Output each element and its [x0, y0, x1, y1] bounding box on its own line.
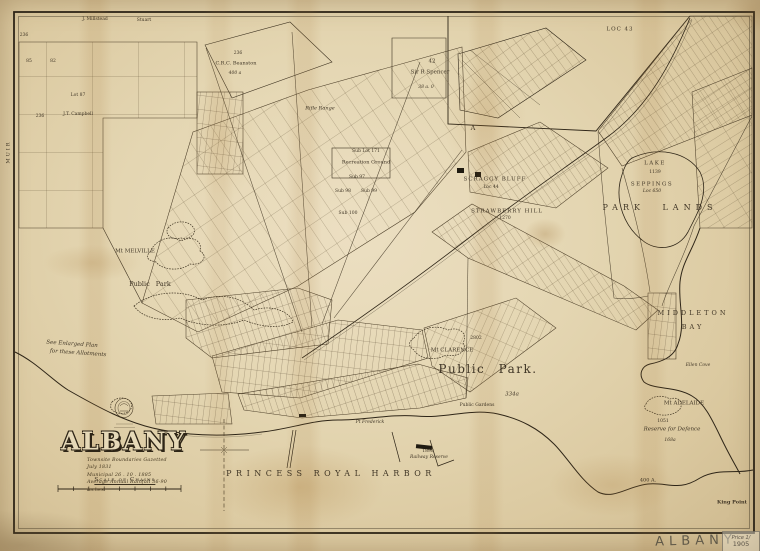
- map-label: Mt CLARENCE: [431, 348, 474, 354]
- map-label: 236: [234, 52, 243, 57]
- map-label: J. Millstead: [82, 18, 108, 23]
- map-label: Sub Lot 171: [352, 150, 380, 155]
- map-label: LOC 43: [606, 27, 633, 33]
- title-subtitle: Townsite Boundaries Gazetted July 1831 M…: [87, 457, 177, 494]
- map-label: Mt MELVILLE: [115, 249, 155, 255]
- map-label: Loc 44: [483, 186, 498, 191]
- subtitle-line-1: Townsite Boundaries Gazetted July 1831: [87, 457, 177, 472]
- map-label: 42: [429, 59, 436, 65]
- map-label: 236: [20, 34, 29, 39]
- map-label: Railway Reserve: [410, 456, 448, 461]
- map-label: 38 a. 0: [418, 86, 434, 91]
- map-label: SEPPINGS: [631, 182, 673, 188]
- map-label: 1051: [657, 420, 668, 425]
- map-label: A: [471, 125, 476, 132]
- map-label: 1139: [649, 171, 660, 176]
- map-label: 2802: [470, 337, 481, 342]
- map-label: 168a: [664, 439, 675, 444]
- map-label: King Point: [717, 501, 747, 506]
- map-label: PARK LANDS: [603, 204, 718, 212]
- map-label: Pt Frederick: [356, 421, 385, 426]
- map-label: Rifle Range: [305, 107, 335, 112]
- map-label: Sub 99: [361, 190, 377, 195]
- map-label: 82: [50, 60, 56, 65]
- map-label: LAKE: [644, 161, 666, 167]
- map-label: STRAWBERRY HILL: [471, 209, 543, 215]
- scale-label: Scale of Chains: [94, 477, 155, 485]
- map-label: Recreation Ground: [342, 161, 390, 166]
- map-label: 400 a: [229, 72, 242, 77]
- map-label: for these Allotments: [50, 349, 107, 358]
- map-label: 334a: [505, 392, 519, 398]
- map-label: Stuart: [137, 19, 151, 24]
- map-label: Sub 100: [339, 212, 358, 217]
- map-label: 236: [36, 115, 45, 120]
- map-title: ALBANY: [61, 427, 186, 456]
- map-label: Public Park: [129, 281, 171, 288]
- map-label: Ellen Cove: [686, 364, 711, 369]
- map-label: Sub 98: [335, 190, 351, 195]
- map-label: SCRAGGY BLUFF: [464, 177, 527, 183]
- map-sheet: PRINCESS ROYAL HARBORPublic Park.PARK LA…: [0, 0, 760, 551]
- map-label: Public Gardens: [460, 404, 495, 409]
- map-label: 1270: [499, 217, 510, 222]
- map-label: 400 A.: [640, 479, 656, 484]
- price-label-box: Price 1/ 1905: [722, 531, 760, 551]
- map-label: C.R.C. Beanston: [215, 62, 256, 67]
- map-label: Sub 97: [349, 176, 365, 181]
- map-label: Lot 87: [71, 94, 86, 99]
- map-label: 1898: [422, 450, 433, 455]
- map-label: Sir R Spencer: [411, 70, 450, 76]
- year-note: 1905: [733, 541, 750, 549]
- map-label: Reserve for Defence: [644, 427, 701, 433]
- map-label: BAY: [682, 324, 705, 331]
- map-label: MUIR: [7, 140, 12, 163]
- map-label: PRINCESS ROYAL HARBOR: [226, 470, 436, 478]
- map-label: 85: [26, 60, 32, 65]
- map-label: J.T. Campbell: [63, 113, 93, 118]
- map-label: Mt ADELAIDE: [664, 401, 704, 407]
- map-label: Public Park.: [438, 363, 537, 375]
- map-label: MIDDLETON: [657, 310, 728, 317]
- map-label: Loc 650: [643, 190, 661, 195]
